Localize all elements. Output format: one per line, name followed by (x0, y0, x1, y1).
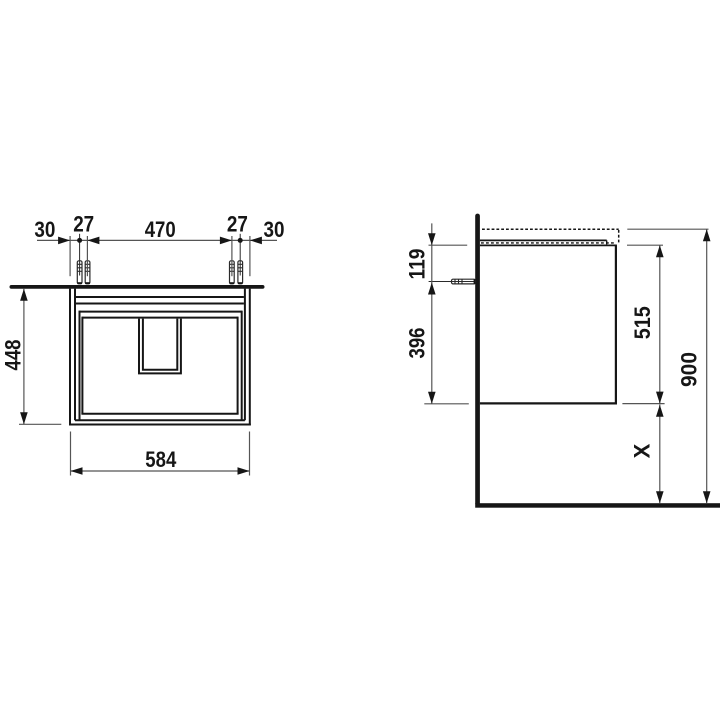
svg-text:27: 27 (227, 212, 248, 237)
svg-text:900: 900 (677, 352, 702, 387)
svg-text:448: 448 (1, 340, 26, 371)
svg-text:470: 470 (145, 217, 176, 242)
svg-text:30: 30 (264, 217, 285, 242)
svg-text:30: 30 (34, 217, 55, 242)
svg-text:515: 515 (630, 306, 655, 339)
svg-text:584: 584 (145, 447, 177, 472)
svg-text:X: X (630, 443, 655, 458)
svg-text:119: 119 (405, 249, 430, 280)
svg-text:396: 396 (405, 328, 430, 359)
svg-text:27: 27 (73, 212, 94, 237)
